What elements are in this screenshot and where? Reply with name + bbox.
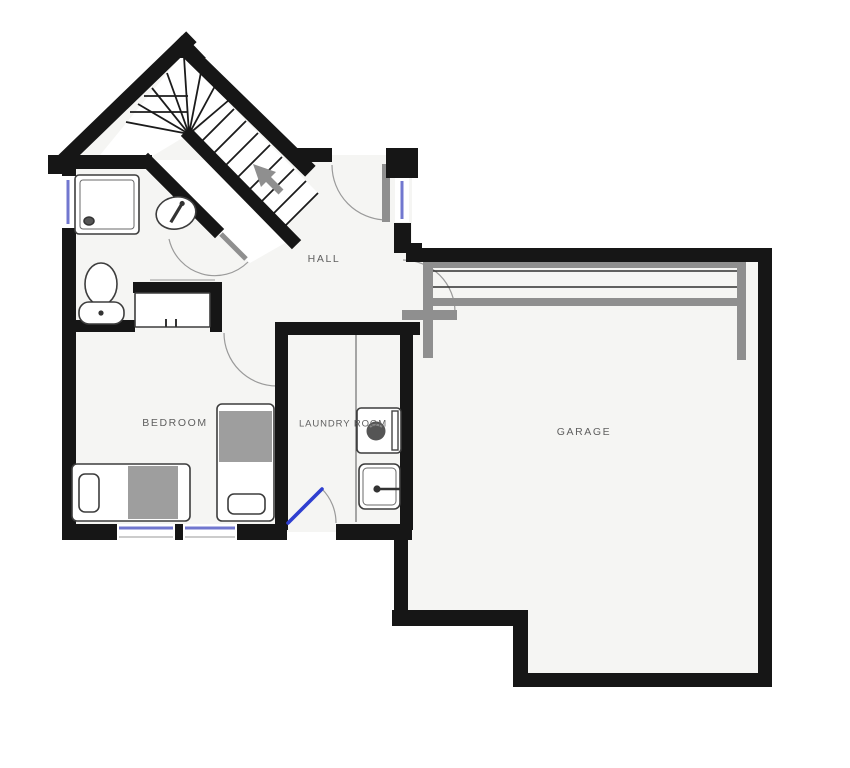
shower xyxy=(75,175,139,234)
bedroom-window-right xyxy=(183,524,237,540)
floor-plan: HALL BEDROOM LAUNDRY ROOM GARAGE xyxy=(0,0,850,768)
hall-window xyxy=(395,178,409,222)
washing-machine xyxy=(357,408,401,453)
room-label-bedroom: BEDROOM xyxy=(142,417,207,429)
garage-door-crossbar xyxy=(402,310,457,320)
bed-single-right xyxy=(217,404,274,521)
room-label-laundry: LAUNDRY ROOM xyxy=(299,419,387,430)
laundry-sink xyxy=(359,464,400,509)
room-label-hall: HALL xyxy=(308,253,341,265)
bedroom-window-left xyxy=(117,524,175,540)
bed-single-left xyxy=(72,464,190,521)
floor-plan-canvas xyxy=(0,0,850,768)
room-label-garage: GARAGE xyxy=(557,426,612,438)
